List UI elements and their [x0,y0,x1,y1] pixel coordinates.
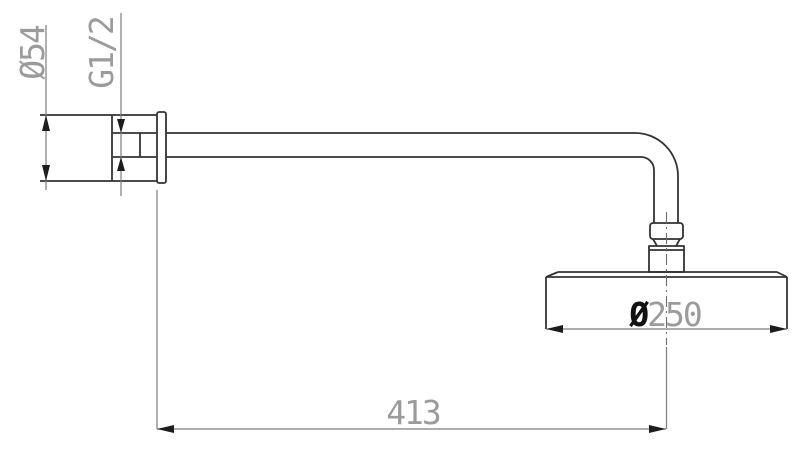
thread-nipple [113,133,156,157]
dimension-flange-diameter: Ø54 [13,25,52,190]
arrow-down [42,165,50,181]
thread-size-label: G1/2 [82,17,121,89]
arrow-up [117,157,125,171]
arrow-up [42,115,50,131]
wall-mount [40,112,166,183]
shower-arm [166,133,678,223]
arm-outer-contour [166,133,678,223]
diameter-value: 250 [647,295,701,334]
flange-ring [157,112,166,183]
technical-drawing-canvas: Ø54 G1/2 Ø250 413 [0,0,800,456]
dimension-arm-length: 413 [157,190,667,433]
diameter-symbol: Ø [628,295,649,334]
arm-length-label: 413 [386,393,440,432]
arm-inner-contour [166,157,654,223]
dimension-thread: G1/2 [82,13,125,196]
head-diameter-label: Ø250 [628,295,701,334]
arrow-right [649,425,666,433]
arrow-right [770,325,787,333]
flange-diameter-label: Ø54 [13,25,52,80]
shower-arm-dimension-drawing: Ø54 G1/2 Ø250 413 [0,0,800,456]
dimension-head-diameter: Ø250 [546,295,787,334]
arrow-left [546,325,563,333]
arrow-down [117,119,125,133]
arrow-left [157,425,174,433]
